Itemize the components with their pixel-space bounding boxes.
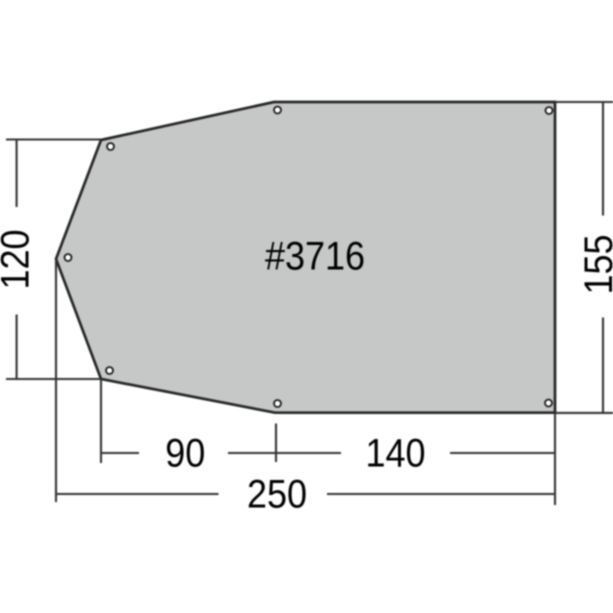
- svg-text:140: 140: [365, 432, 425, 476]
- svg-text:250: 250: [247, 473, 307, 517]
- svg-text:120: 120: [0, 229, 38, 289]
- svg-text:90: 90: [165, 432, 205, 476]
- svg-text:#3716: #3716: [265, 235, 365, 279]
- svg-text:155: 155: [578, 234, 613, 294]
